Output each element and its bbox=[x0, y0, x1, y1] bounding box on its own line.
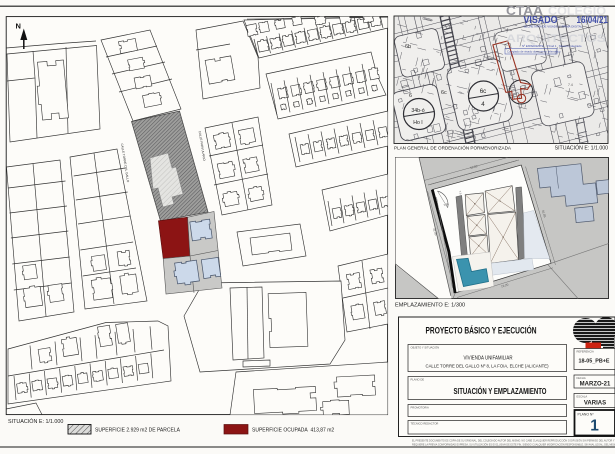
svg-text:34b-ó: 34b-ó bbox=[411, 108, 424, 114]
svg-text:EMPLAZAMIENTO E: 1/300: EMPLAZAMIENTO E: 1/300 bbox=[395, 303, 465, 309]
svg-text:PROYECTO BÁSICO Y EJECUCIÓN: PROYECTO BÁSICO Y EJECUCIÓN bbox=[426, 325, 537, 337]
svg-text:7.4: 7.4 bbox=[568, 83, 573, 87]
svg-text:ESCALA: ESCALA bbox=[577, 395, 588, 399]
svg-text:6b: 6b bbox=[405, 44, 411, 50]
svg-text:4: 4 bbox=[481, 101, 485, 108]
svg-text:SECRETARÍA DE VISADO Y FIRMA D: SECRETARÍA DE VISADO Y FIRMA DIGITAL bbox=[524, 25, 583, 29]
svg-text:MARZO-21: MARZO-21 bbox=[580, 382, 611, 388]
svg-text:6: 6 bbox=[409, 93, 412, 99]
svg-text:6c: 6c bbox=[441, 90, 447, 96]
svg-text:REQUIERE LA PREVIA CONFORMIDAD: REQUIERE LA PREVIA CONFORMIDAD EXPRESA, … bbox=[412, 443, 615, 446]
svg-text:PLANO Nº: PLANO Nº bbox=[578, 413, 595, 417]
svg-text:SITUACIÓN E: 1/1.000: SITUACIÓN E: 1/1.000 bbox=[555, 145, 608, 152]
svg-text:18-05_PB+E: 18-05_PB+E bbox=[578, 359, 609, 365]
svg-text:SUPERFICIE OCUPADA 413,87 m2: SUPERFICIE OCUPADA 413,87 m2 bbox=[252, 428, 334, 434]
svg-text:VIVIENDA UNIFAMILIAR: VIVIENDA UNIFAMILIAR bbox=[464, 356, 513, 362]
svg-text:FECHA: FECHA bbox=[577, 376, 586, 380]
svg-text:SUPERFICIE 2.929 m2 DE PARCELA: SUPERFICIE 2.929 m2 DE PARCELA bbox=[95, 428, 181, 434]
svg-text:6c: 6c bbox=[480, 88, 487, 95]
svg-text:CALLE TORRE DEL GALLO Nº 8, LA: CALLE TORRE DEL GALLO Nº 8, LA FOIA, ELC… bbox=[426, 364, 550, 369]
svg-text:EL PRESENTE DOCUMENTO ES COPIA: EL PRESENTE DOCUMENTO ES COPIA DE SU ORI… bbox=[412, 440, 615, 443]
svg-text:PROMOTOR/A: PROMOTOR/A bbox=[411, 406, 430, 410]
svg-text:Nº EXPEDIENTE P.Cod 1 Núm: Nº EXPEDIENTE P.Cod 1 Número colegiado bbox=[522, 44, 582, 48]
svg-text:SITUACIÓN E: 1/1.000: SITUACIÓN E: 1/1.000 bbox=[8, 418, 63, 425]
svg-text:SITUACIÓN Y EMPLAZAMIENTO: SITUACIÓN Y EMPLAZAMIENTO bbox=[454, 385, 547, 396]
svg-text:N: N bbox=[16, 22, 21, 31]
svg-text:PLAN GENERAL DE ORDENACIÓN POR: PLAN GENERAL DE ORDENACIÓN PORMENORIZADA bbox=[394, 145, 512, 151]
svg-text:REFERENCIA: REFERENCIA bbox=[577, 350, 595, 354]
svg-text:1: 1 bbox=[590, 418, 599, 435]
svg-text:Colegiado de visado documento: Colegiado de visado documento telemático bbox=[507, 50, 561, 54]
svg-text:PLANO DE: PLANO DE bbox=[411, 378, 425, 382]
svg-text:Ho I: Ho I bbox=[413, 120, 423, 126]
svg-text:VARIAS: VARIAS bbox=[584, 401, 606, 407]
